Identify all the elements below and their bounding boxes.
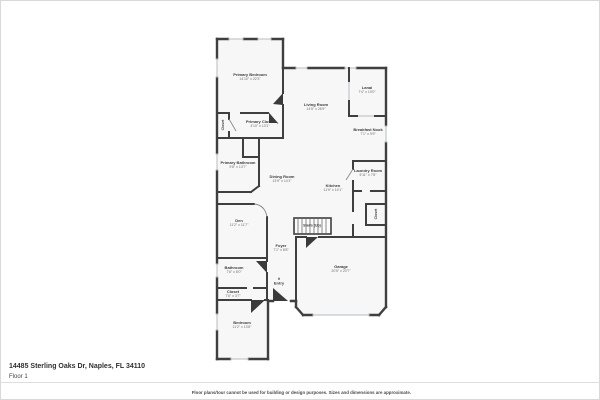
footer-divider [1,382,600,383]
floorplan-drawing [1,1,600,400]
address-text: 14485 Sterling Oaks Dr, Naples, FL 34110 [9,363,145,370]
floorplan-footprint [217,39,386,359]
floor-label: Floor 1 [9,374,28,380]
floorplan-page: Primary Bedroom 14'10" x 22'3" Living Ro… [0,0,600,400]
stairs [294,218,331,234]
disclaimer-text: Floor plans/tour cannot be used for buil… [1,384,600,400]
